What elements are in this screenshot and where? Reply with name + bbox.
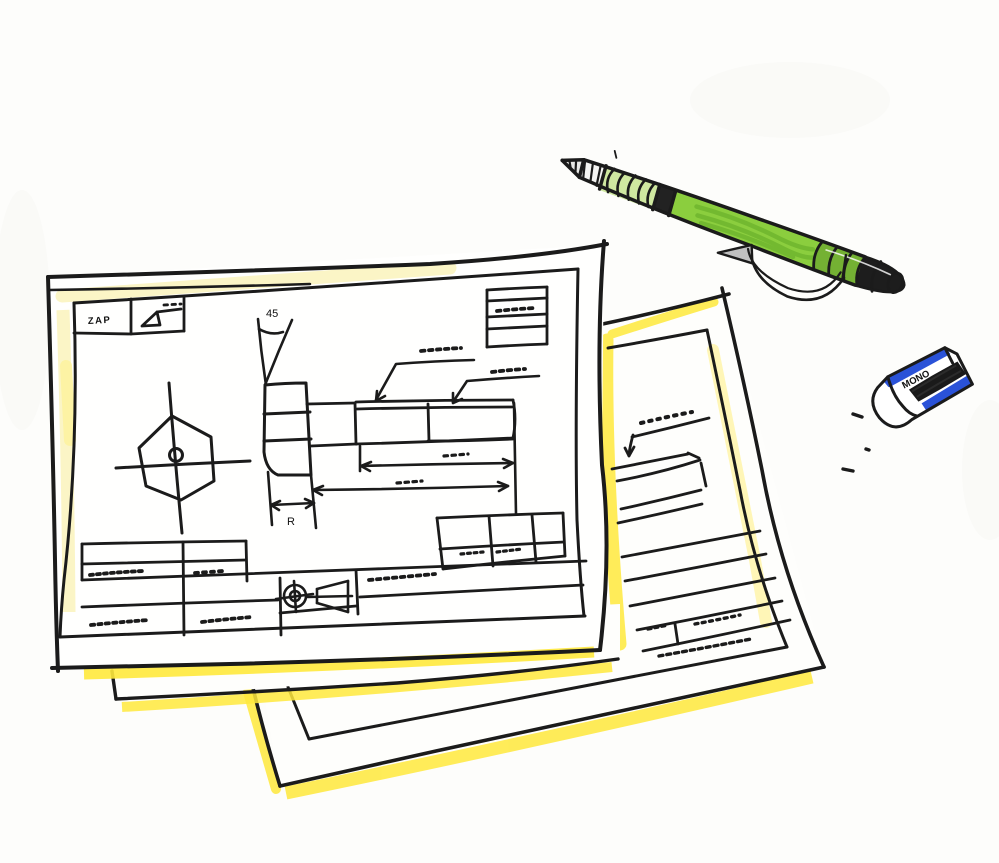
svg-text:ZAP: ZAP (88, 315, 112, 327)
svg-text:45: 45 (266, 308, 278, 320)
svg-text:R: R (287, 516, 295, 528)
